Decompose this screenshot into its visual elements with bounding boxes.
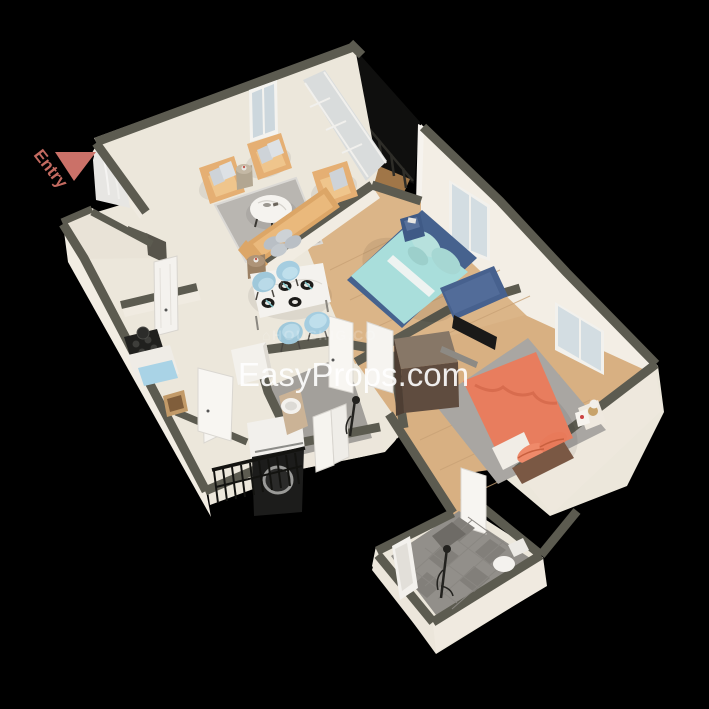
svg-text:⌂HOUSING.CO: ⌂HOUSING.CO: [262, 327, 377, 343]
svg-text:EasyProps.com: EasyProps.com: [238, 356, 469, 393]
